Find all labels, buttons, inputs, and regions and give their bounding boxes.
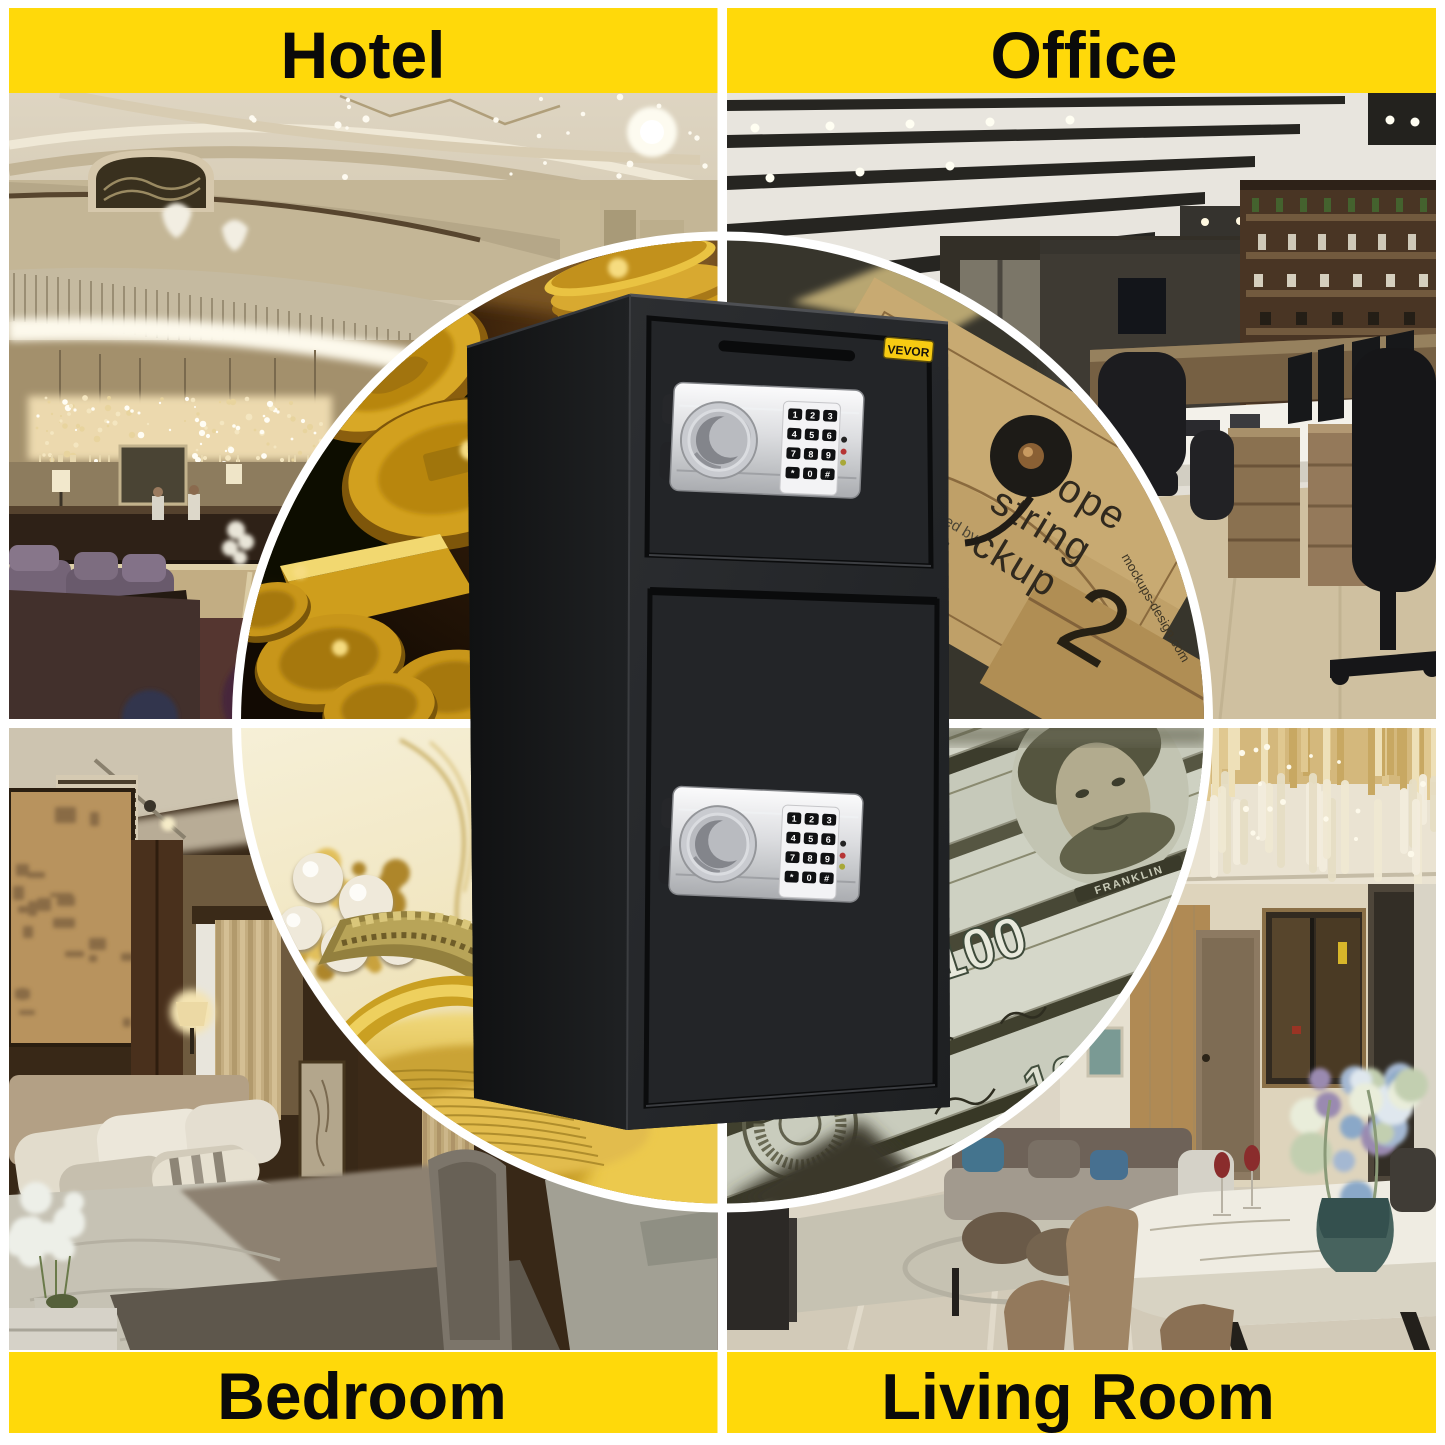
- svg-text:0: 0: [807, 469, 812, 479]
- svg-text:5: 5: [809, 430, 814, 440]
- svg-text:Office: Office: [990, 18, 1177, 92]
- svg-text:6: 6: [826, 835, 831, 845]
- svg-text:8: 8: [807, 853, 812, 863]
- svg-text:6: 6: [827, 431, 832, 441]
- svg-text:1: 1: [791, 814, 796, 824]
- svg-text:Living Room: Living Room: [881, 1360, 1275, 1433]
- svg-text:5: 5: [808, 834, 813, 844]
- svg-text:7: 7: [790, 853, 795, 863]
- svg-text:3: 3: [826, 815, 831, 825]
- svg-text:7: 7: [791, 449, 796, 459]
- svg-text:0: 0: [806, 873, 811, 883]
- svg-text:Bedroom: Bedroom: [217, 1359, 507, 1433]
- svg-text:8: 8: [808, 449, 813, 459]
- svg-text:#: #: [824, 874, 829, 884]
- svg-text:3: 3: [827, 411, 832, 421]
- svg-text:4: 4: [791, 833, 796, 843]
- svg-text:4: 4: [792, 429, 797, 439]
- svg-text:#: #: [825, 470, 830, 480]
- svg-text:2: 2: [810, 410, 815, 420]
- svg-text:9: 9: [825, 854, 830, 864]
- svg-text:9: 9: [826, 450, 831, 460]
- svg-text:Hotel: Hotel: [281, 18, 446, 92]
- svg-text:2: 2: [809, 814, 814, 824]
- svg-text:1: 1: [792, 410, 797, 420]
